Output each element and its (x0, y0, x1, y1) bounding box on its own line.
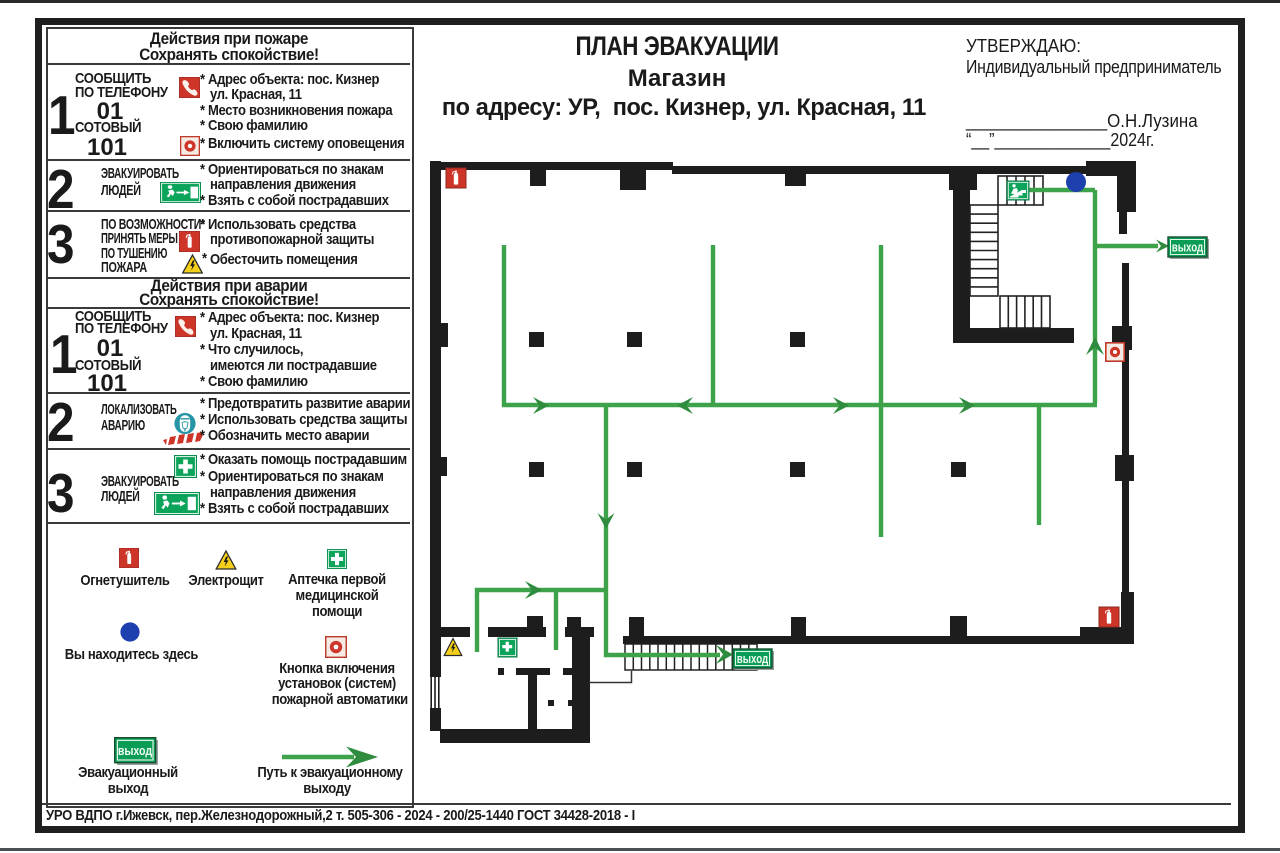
svg-text:выход: выход (737, 653, 768, 666)
svg-text:выход: выход (1172, 241, 1203, 254)
